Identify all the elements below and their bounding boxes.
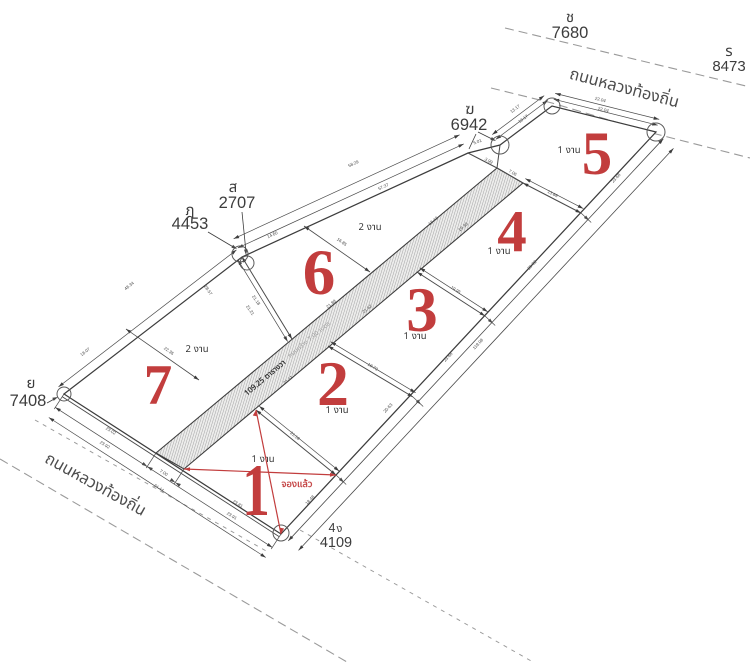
svg-text:7680: 7680 bbox=[552, 24, 589, 42]
svg-text:7: 7 bbox=[144, 354, 173, 417]
svg-text:4453: 4453 bbox=[172, 215, 209, 233]
svg-text:7408: 7408 bbox=[10, 392, 47, 410]
svg-text:4109: 4109 bbox=[320, 535, 352, 551]
svg-text:4: 4 bbox=[497, 198, 527, 264]
svg-text:1: 1 bbox=[242, 451, 270, 532]
svg-text:4: 4 bbox=[329, 521, 336, 535]
svg-text:5: 5 bbox=[582, 121, 613, 188]
svg-text:6942: 6942 bbox=[451, 116, 488, 134]
svg-text:6: 6 bbox=[303, 237, 336, 309]
svg-text:2707: 2707 bbox=[219, 194, 256, 212]
svg-text:8473: 8473 bbox=[712, 58, 745, 75]
